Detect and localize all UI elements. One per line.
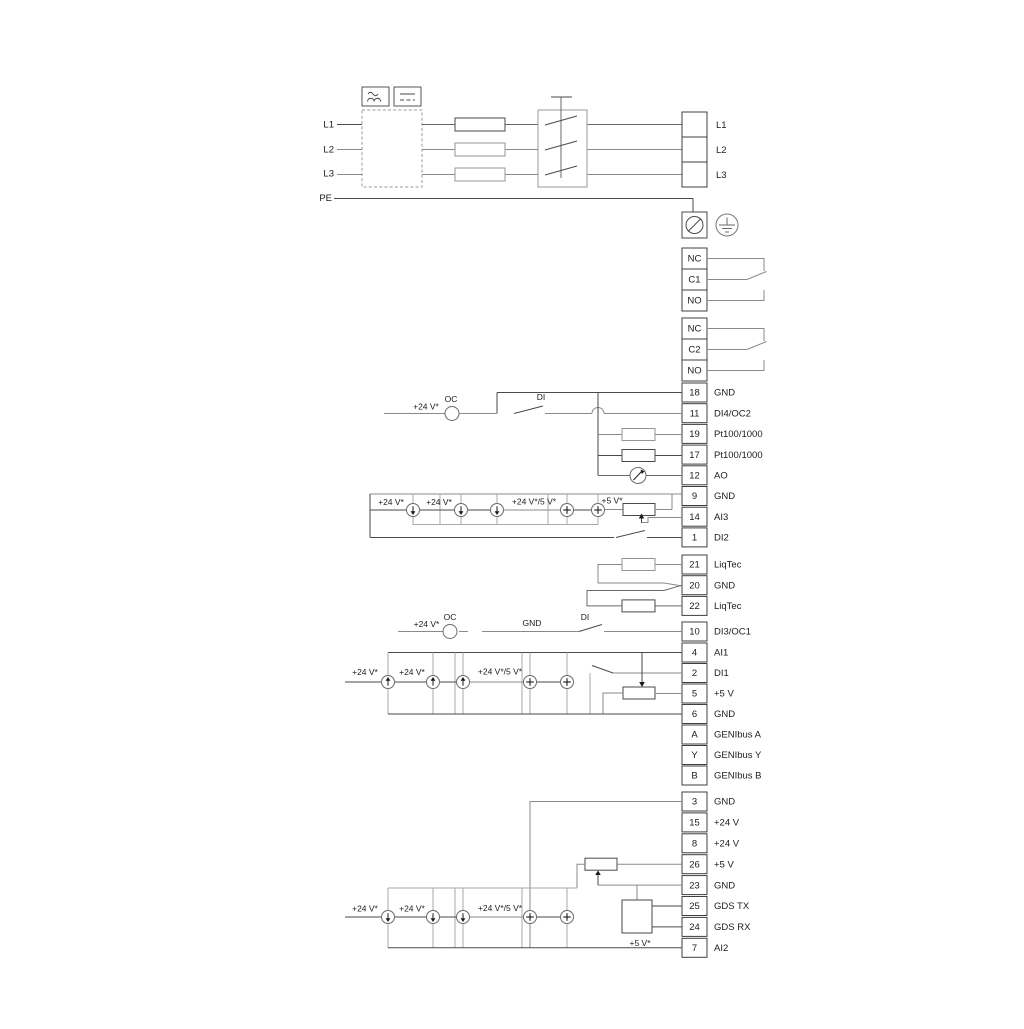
- terminal-number: 8: [692, 839, 697, 850]
- voltage-annotation: +24 V*: [399, 667, 425, 677]
- voltage-annotation: +24 V*/5 V*: [512, 497, 557, 507]
- terminal-number: 9: [692, 491, 697, 502]
- terminal-number: 1: [692, 533, 697, 544]
- fuse-l2: [455, 143, 505, 156]
- voltage-annotation: +24 V*: [426, 497, 452, 507]
- voltage-annotation: +5 V*: [629, 938, 651, 948]
- voltage-source-icon: [524, 676, 537, 689]
- protective-earth-terminal-icon: [682, 212, 707, 238]
- terminal-number: Y: [691, 750, 698, 761]
- voltage-annotation: +24 V*: [413, 402, 439, 412]
- open-collector-icon: [443, 625, 457, 639]
- terminal-number: 4: [692, 648, 697, 659]
- terminal-number: 20: [689, 580, 700, 591]
- voltage-source-icon: [561, 504, 574, 517]
- voltage-source-icon: [592, 504, 605, 517]
- terminal-number: 6: [692, 709, 697, 720]
- current-sink-icon: [455, 504, 468, 517]
- output-phase-label: L2: [716, 145, 727, 156]
- terminal-label: +5 V: [714, 689, 734, 700]
- voltage-annotation: +24 V*: [352, 667, 378, 677]
- current-sink-icon: [407, 504, 420, 517]
- current-sink-icon: [427, 911, 440, 924]
- terminal-label: DI4/OC2: [714, 408, 751, 419]
- terminal-number: 2: [692, 668, 697, 679]
- terminal-label: AI1: [714, 648, 728, 659]
- terminal-label: Pt100/1000: [714, 429, 763, 440]
- terminal-label: GND: [714, 388, 735, 399]
- terminal-label: GND: [714, 491, 735, 502]
- terminal-number: 5: [692, 689, 697, 700]
- terminal-number: B: [691, 771, 697, 782]
- power-terminal-block: L1 L2 L3: [682, 112, 727, 187]
- current-source-icon: [457, 676, 470, 689]
- voltage-annotation: +24 V*: [378, 497, 404, 507]
- di-annotation: DI: [581, 612, 590, 622]
- terminal-number: 7: [692, 943, 697, 954]
- current-sink-icon: [382, 911, 395, 924]
- pe-label: PE: [319, 193, 332, 204]
- terminal-number: 23: [689, 880, 700, 891]
- gnd-annotation: GND: [523, 618, 542, 628]
- terminal-number: 14: [689, 512, 700, 523]
- voltage-annotation: +5 V*: [601, 496, 623, 506]
- terminal-cell: [682, 162, 707, 187]
- input-phase-label: L3: [323, 169, 334, 180]
- terminal-label: +24 V: [714, 839, 740, 850]
- terminal-label: AI2: [714, 943, 728, 954]
- current-sink-icon: [491, 504, 504, 517]
- input-phase-label: L2: [323, 145, 334, 156]
- terminal-label: AI3: [714, 512, 728, 523]
- terminal-number: 22: [689, 601, 700, 612]
- terminal-label: GND: [714, 880, 735, 891]
- di-annotation: DI: [537, 392, 546, 402]
- voltage-source-icon: [524, 911, 537, 924]
- voltage-annotation: +24 V*: [352, 904, 378, 914]
- fuse-l1: [455, 118, 505, 131]
- pt100-sensor-icon: [622, 429, 655, 441]
- potentiometer: [623, 687, 655, 699]
- terminal-number: 10: [689, 627, 700, 638]
- analog-output-meter-icon: [630, 468, 646, 484]
- terminal-cell: [682, 137, 707, 162]
- pt100-sensor-icon: [622, 450, 655, 462]
- terminal-label: LiqTec: [714, 560, 742, 571]
- terminal-number: A: [691, 730, 698, 741]
- voltage-annotation: +24 V*: [399, 904, 425, 914]
- relay-terminal-label: C2: [688, 345, 700, 356]
- relay-terminal-label: NC: [688, 254, 702, 265]
- terminal-label: GDS RX: [714, 922, 751, 933]
- wiring-diagram-page: L1 L2 L3 PE: [0, 0, 1024, 1024]
- terminal-label: GENIbus Y: [714, 750, 762, 761]
- gds-sensor-box: [622, 900, 652, 933]
- terminal-number: 18: [689, 388, 700, 399]
- potentiometer: [623, 504, 655, 516]
- potentiometer: [585, 858, 617, 870]
- terminal-label: DI1: [714, 668, 729, 679]
- terminal-label: AO: [714, 471, 728, 482]
- voltage-source-icon: [561, 676, 574, 689]
- liqtec-sensor-icon: [622, 600, 655, 612]
- current-sink-icon: [457, 911, 470, 924]
- terminal-label: GENIbus A: [714, 730, 762, 741]
- terminal-label: Pt100/1000: [714, 450, 763, 461]
- wiring-diagram: L1 L2 L3 PE: [0, 0, 1024, 1024]
- fuse-l3: [455, 168, 505, 181]
- relay-terminal-label: NC: [688, 324, 702, 335]
- terminal-number: 24: [689, 922, 700, 933]
- terminal-label: +5 V: [714, 859, 734, 870]
- background: [0, 0, 1024, 1024]
- terminal-number: 3: [692, 797, 697, 808]
- voltage-annotation: +24 V*/5 V*: [478, 903, 523, 913]
- terminal-label: GENIbus B: [714, 771, 762, 782]
- terminal-label: +24 V: [714, 818, 740, 829]
- terminal-label: DI2: [714, 533, 729, 544]
- relay-terminal-label: NO: [687, 296, 701, 307]
- voltage-annotation: +24 V*/5 V*: [478, 667, 523, 677]
- output-phase-label: L3: [716, 170, 727, 181]
- terminal-number: 12: [689, 471, 700, 482]
- terminal-number: 25: [689, 901, 700, 912]
- output-phase-label: L1: [716, 120, 727, 131]
- relay-terminal-label: NO: [687, 366, 701, 377]
- voltage-source-icon: [561, 911, 574, 924]
- terminal-number: 19: [689, 429, 700, 440]
- relay-terminal-label: C1: [688, 275, 700, 286]
- oc-annotation: OC: [445, 394, 458, 404]
- liqtec-sensor-icon: [622, 559, 655, 571]
- terminal-number: 11: [690, 408, 700, 419]
- terminal-label: DI3/OC1: [714, 627, 751, 638]
- terminal-label: GND: [714, 709, 735, 720]
- terminal-label: GDS TX: [714, 901, 750, 912]
- current-source-icon: [382, 676, 395, 689]
- terminal-number: 26: [689, 859, 700, 870]
- terminal-cell: [682, 112, 707, 137]
- current-source-icon: [427, 676, 440, 689]
- oc-annotation: OC: [444, 612, 457, 622]
- terminal-label: LiqTec: [714, 601, 742, 612]
- terminal-number: 17: [689, 450, 700, 461]
- input-phase-label: L1: [323, 120, 334, 131]
- terminal-label: GND: [714, 797, 735, 808]
- terminal-number: 15: [689, 818, 700, 829]
- voltage-annotation: +24 V*: [414, 619, 440, 629]
- terminal-number: 21: [689, 560, 700, 571]
- terminal-label: GND: [714, 580, 735, 591]
- open-collector-icon: [445, 407, 459, 421]
